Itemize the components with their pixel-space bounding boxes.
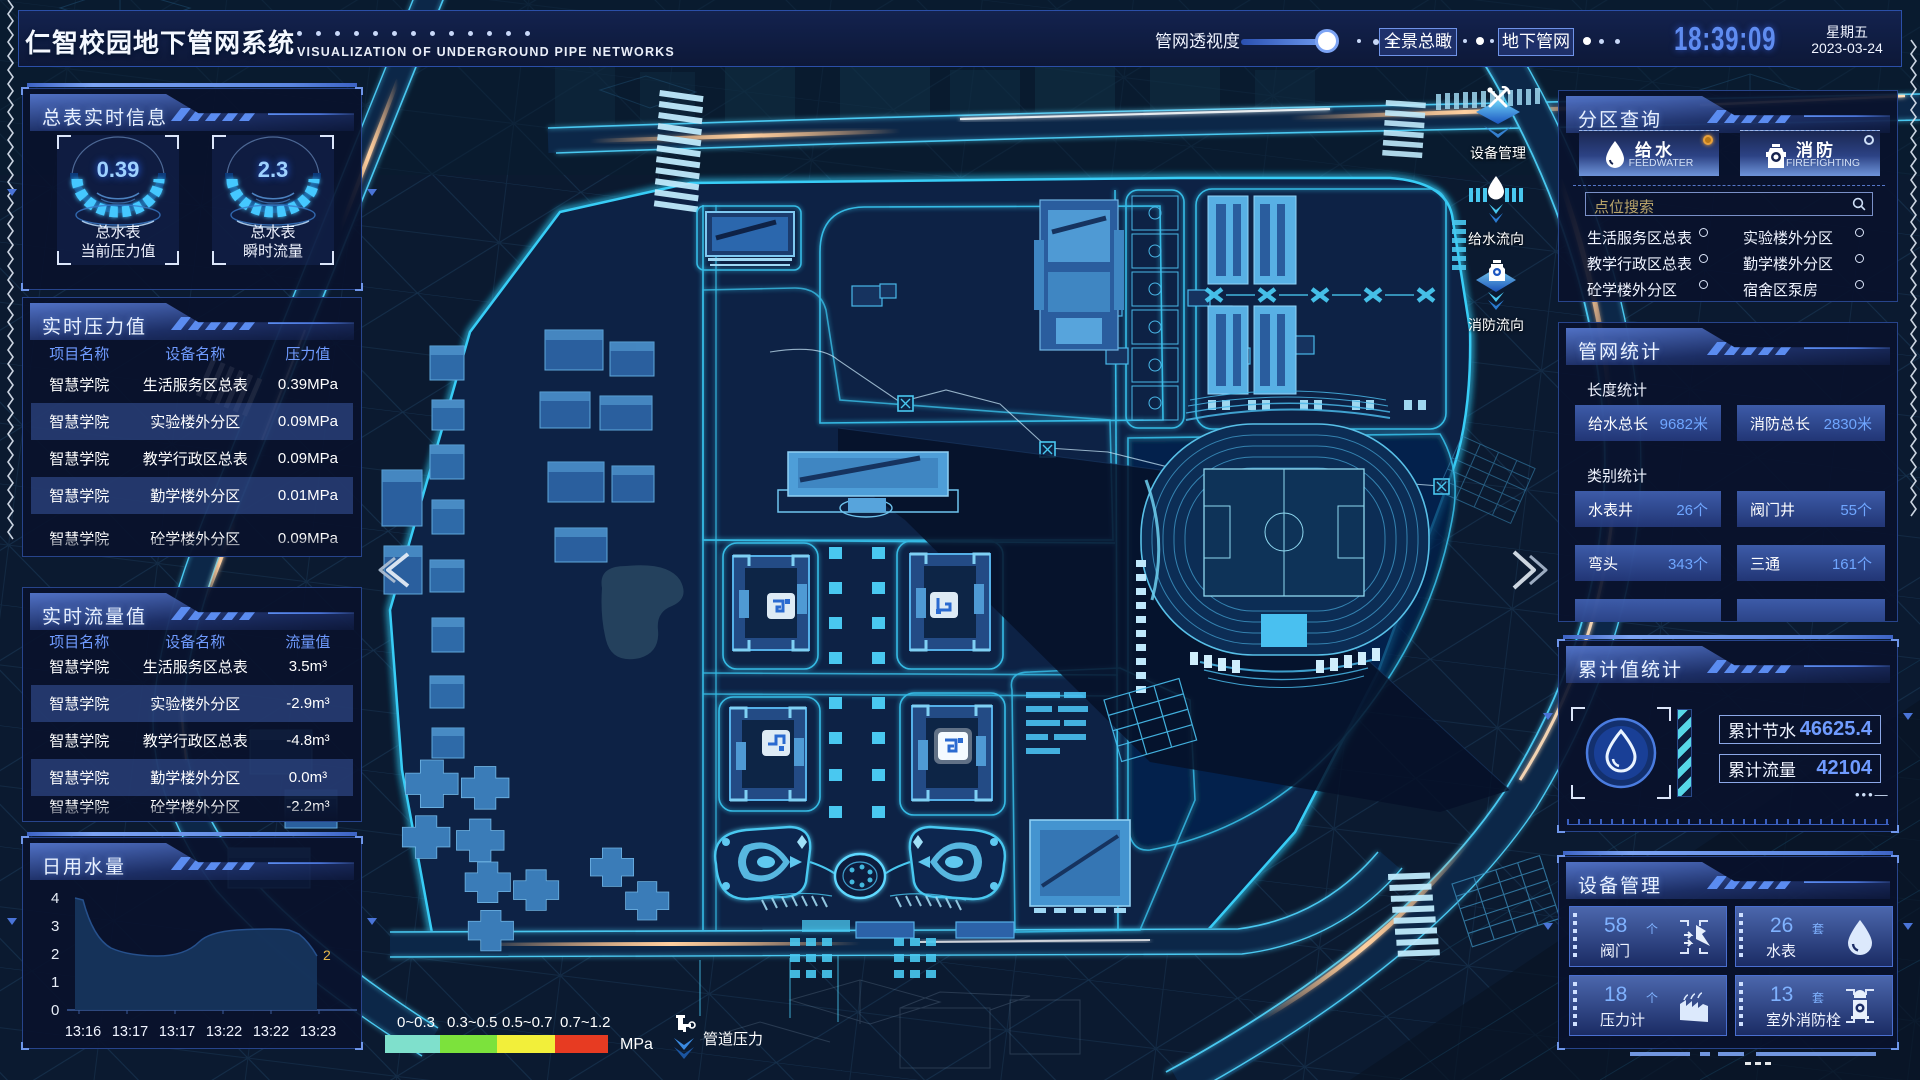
svg-text:13:17: 13:17 bbox=[112, 1024, 148, 1040]
svg-text:1: 1 bbox=[51, 974, 59, 991]
svg-text:4: 4 bbox=[51, 890, 59, 907]
svg-text:13:17: 13:17 bbox=[159, 1024, 195, 1040]
svg-text:13:22: 13:22 bbox=[253, 1024, 289, 1040]
svg-text:13:22: 13:22 bbox=[206, 1024, 242, 1040]
svg-text:2: 2 bbox=[51, 946, 59, 963]
svg-text:0: 0 bbox=[51, 1002, 59, 1019]
svg-text:13:23: 13:23 bbox=[300, 1024, 336, 1040]
svg-text:13:16: 13:16 bbox=[65, 1024, 101, 1040]
svg-text:3: 3 bbox=[51, 918, 59, 935]
svg-text:2: 2 bbox=[323, 947, 331, 963]
